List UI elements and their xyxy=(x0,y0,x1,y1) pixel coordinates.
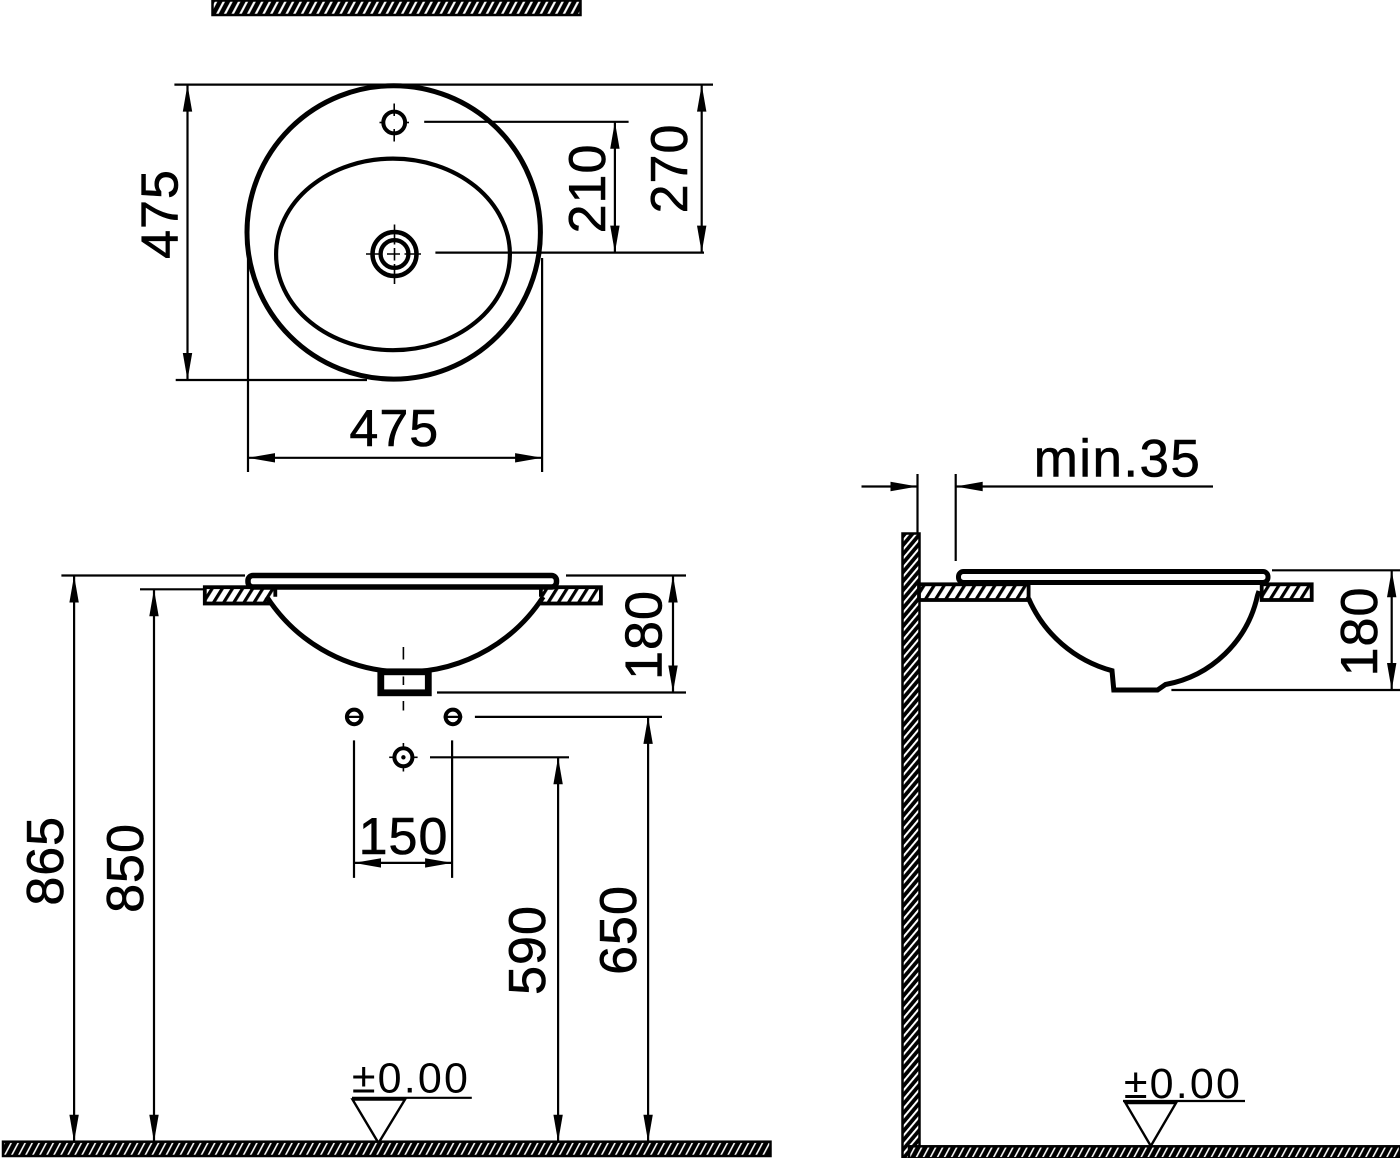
svg-text:180: 180 xyxy=(616,590,674,680)
svg-text:210: 210 xyxy=(559,144,617,234)
svg-text:150: 150 xyxy=(359,808,449,866)
svg-text:590: 590 xyxy=(499,905,557,995)
svg-text:475: 475 xyxy=(349,400,439,458)
svg-text:850: 850 xyxy=(97,823,155,913)
svg-text:475: 475 xyxy=(132,169,190,259)
svg-text:180: 180 xyxy=(1331,587,1389,677)
svg-text:270: 270 xyxy=(641,124,699,214)
svg-text:650: 650 xyxy=(590,885,648,975)
svg-text:min.35: min.35 xyxy=(1034,430,1201,489)
svg-text:±0.00: ±0.00 xyxy=(352,1055,470,1103)
svg-text:865: 865 xyxy=(17,816,75,906)
